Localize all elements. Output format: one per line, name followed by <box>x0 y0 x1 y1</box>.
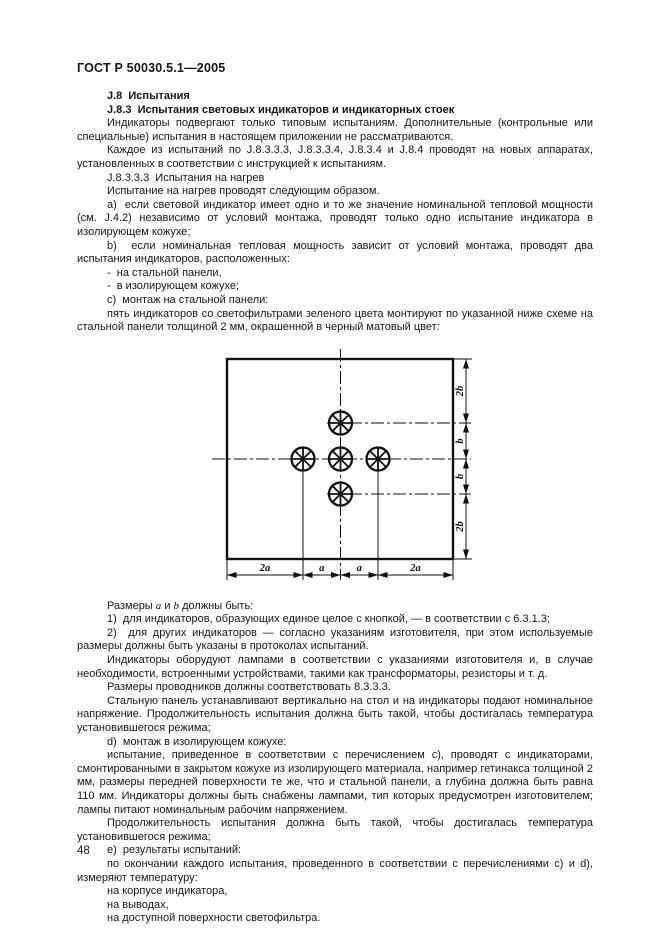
indicator-symbol <box>329 482 352 505</box>
paragraph: J.8.3.3.3 Испытания на нагрев <box>77 172 593 186</box>
paragraph: испытание, приведенное в соответствии с … <box>77 749 593 817</box>
paragraph: Индикаторы оборудуют лампами в соответст… <box>77 654 593 681</box>
indicator-symbol <box>329 411 352 434</box>
indicator-scheme-figure: 2a a a 2a 2b b b 2b <box>205 347 485 595</box>
paragraph: b) если номинальная тепловая мощность за… <box>77 240 593 267</box>
paragraph: e) результаты испытаний: <box>77 844 593 858</box>
dimension-label: 2a <box>259 563 271 574</box>
indicator-symbol <box>329 447 352 470</box>
paragraph: на выводах, <box>77 899 593 913</box>
paragraph: 1) для индикаторов, образующих единое це… <box>77 613 593 627</box>
paragraph: Стальную панель устанавливают вертикальн… <box>77 695 593 736</box>
dimension-label: a <box>357 563 362 574</box>
paragraph: Продолжительность испытания должна быть … <box>77 817 593 844</box>
text-block-after-figure: Размеры a и b должны быть:1) для индикат… <box>77 600 593 926</box>
paragraph: - на стальной панели, <box>77 267 593 281</box>
paragraph: - в изолирующем кожухе; <box>77 280 593 294</box>
section-heading: J.8 Испытания <box>77 90 593 104</box>
dimension-label: b <box>455 438 466 443</box>
text-run: и <box>161 600 173 612</box>
dimension-label: 2b <box>455 385 466 397</box>
dimension-label: 2b <box>455 521 466 533</box>
paragraph: на корпусе индикатора, <box>77 885 593 899</box>
indicator-symbol <box>292 447 315 470</box>
text-block-before-figure: J.8 ИспытанияJ.8.3 Испытания световых ин… <box>77 90 593 335</box>
paragraph: Каждое из испытаний по J.8.3.3.3, J.8.3.… <box>77 144 593 171</box>
paragraph: d) монтаж в изолирующем кожухе: <box>77 736 593 750</box>
paragraph: 2) для других индикаторов — согласно ука… <box>77 627 593 654</box>
paragraph: Индикаторы подвергают только типовым исп… <box>77 117 593 144</box>
dimension-label: a <box>319 563 324 574</box>
paragraph: на доступной поверхности светофильтра. <box>77 912 593 926</box>
document-page: ГОСТ Р 50030.5.1—2005 J.8 ИспытанияJ.8.3… <box>0 0 661 936</box>
paragraph: Размеры a и b должны быть: <box>77 600 593 614</box>
dimension-label: 2a <box>409 563 421 574</box>
paragraph: a) если световой индикатор имеет одно и … <box>77 199 593 240</box>
section-heading: J.8.3 Испытания световых индикаторов и и… <box>77 104 593 118</box>
figure-container: 2a a a 2a 2b b b 2b <box>205 347 485 595</box>
indicator-symbol <box>367 447 390 470</box>
paragraph: Испытание на нагрев проводят следующим о… <box>77 185 593 199</box>
document-body: J.8 ИспытанияJ.8.3 Испытания световых ин… <box>77 90 593 926</box>
page-number: 48 <box>77 845 90 857</box>
paragraph: Размеры проводников должны соответствова… <box>77 681 593 695</box>
text-run: Размеры <box>107 600 156 612</box>
paragraph: c) монтаж на стальной панели: <box>77 294 593 308</box>
text-run: должны быть: <box>179 600 253 612</box>
paragraph: по окончании каждого испытания, проведен… <box>77 858 593 885</box>
dimension-label: b <box>455 474 466 479</box>
paragraph: пять индикаторов со светофильтрами зелен… <box>77 308 593 335</box>
doc-header-title: ГОСТ Р 50030.5.1—2005 <box>77 61 225 75</box>
